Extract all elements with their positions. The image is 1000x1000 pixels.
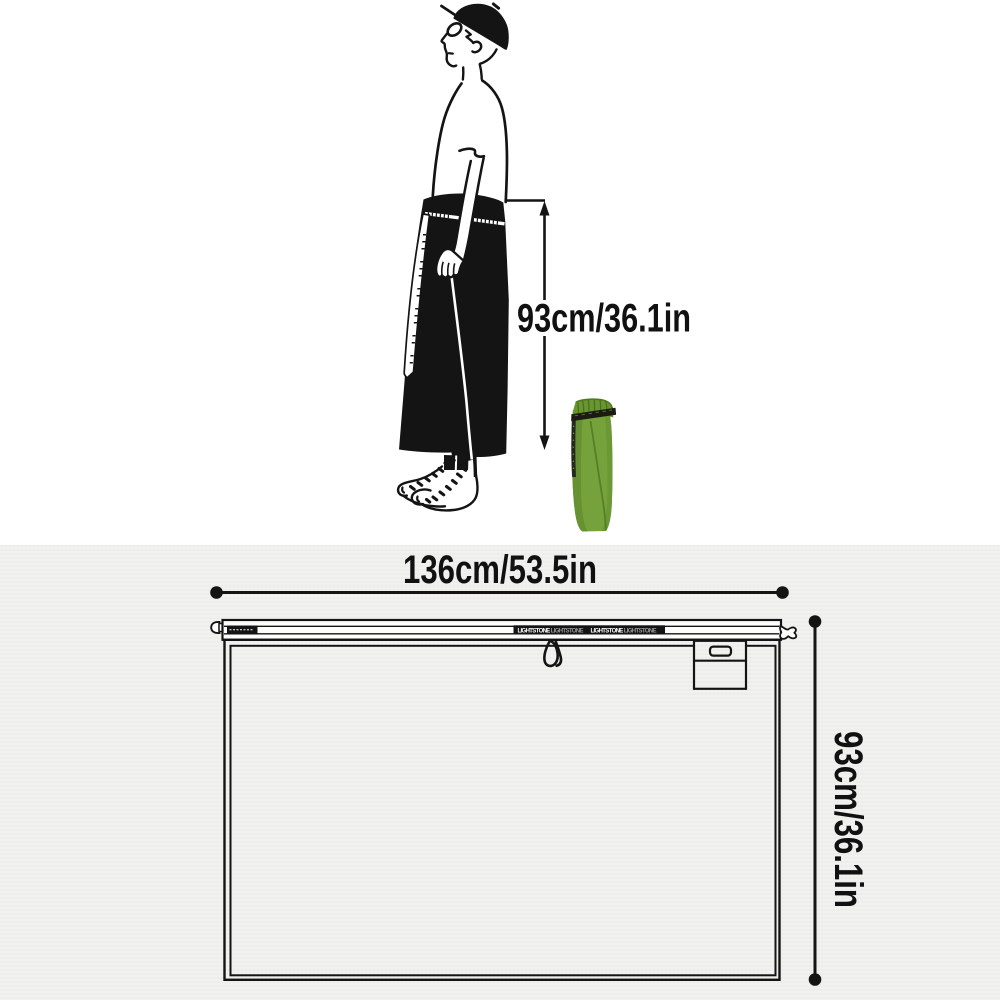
svg-text:LIGHTSTONE LIGHTSTONE: LIGHTSTONE LIGHTSTONE: [518, 629, 584, 635]
svg-text:93cm/36.1in: 93cm/36.1in: [517, 297, 691, 341]
svg-text:93cm/36.1in: 93cm/36.1in: [826, 731, 870, 908]
svg-text:136cm/53.5in: 136cm/53.5in: [403, 548, 597, 592]
svg-text:LIGHTSTONE LIGHTSTONE: LIGHTSTONE LIGHTSTONE: [591, 629, 657, 635]
